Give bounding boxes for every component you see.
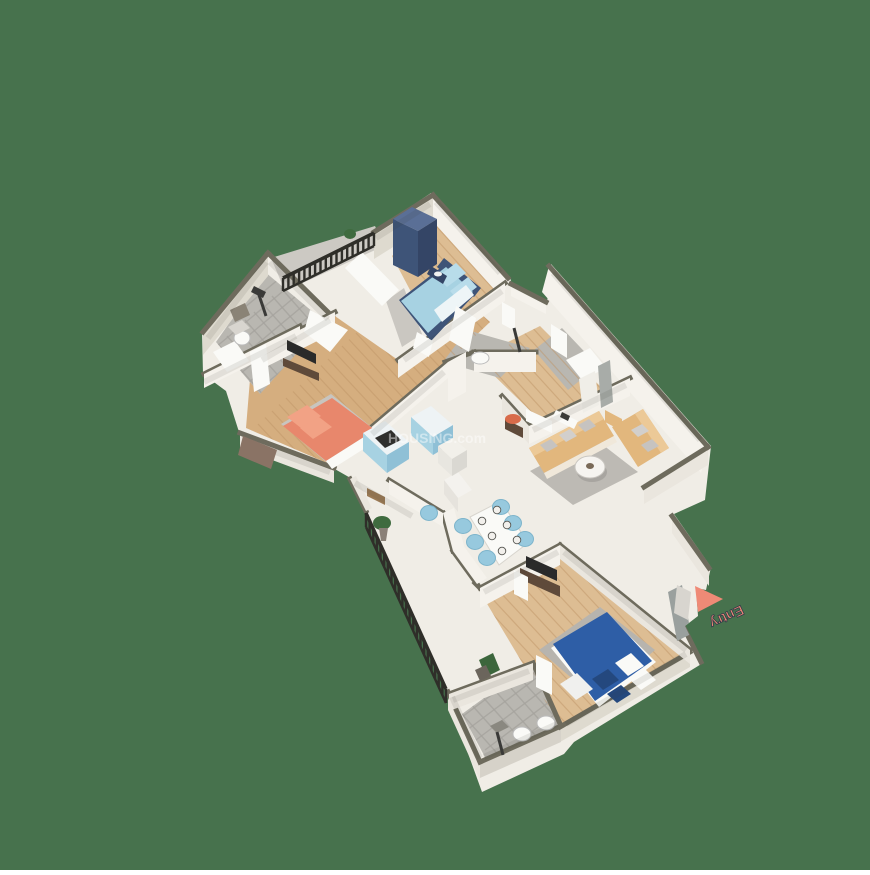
- svg-text:HOUSING.com: HOUSING.com: [388, 430, 486, 446]
